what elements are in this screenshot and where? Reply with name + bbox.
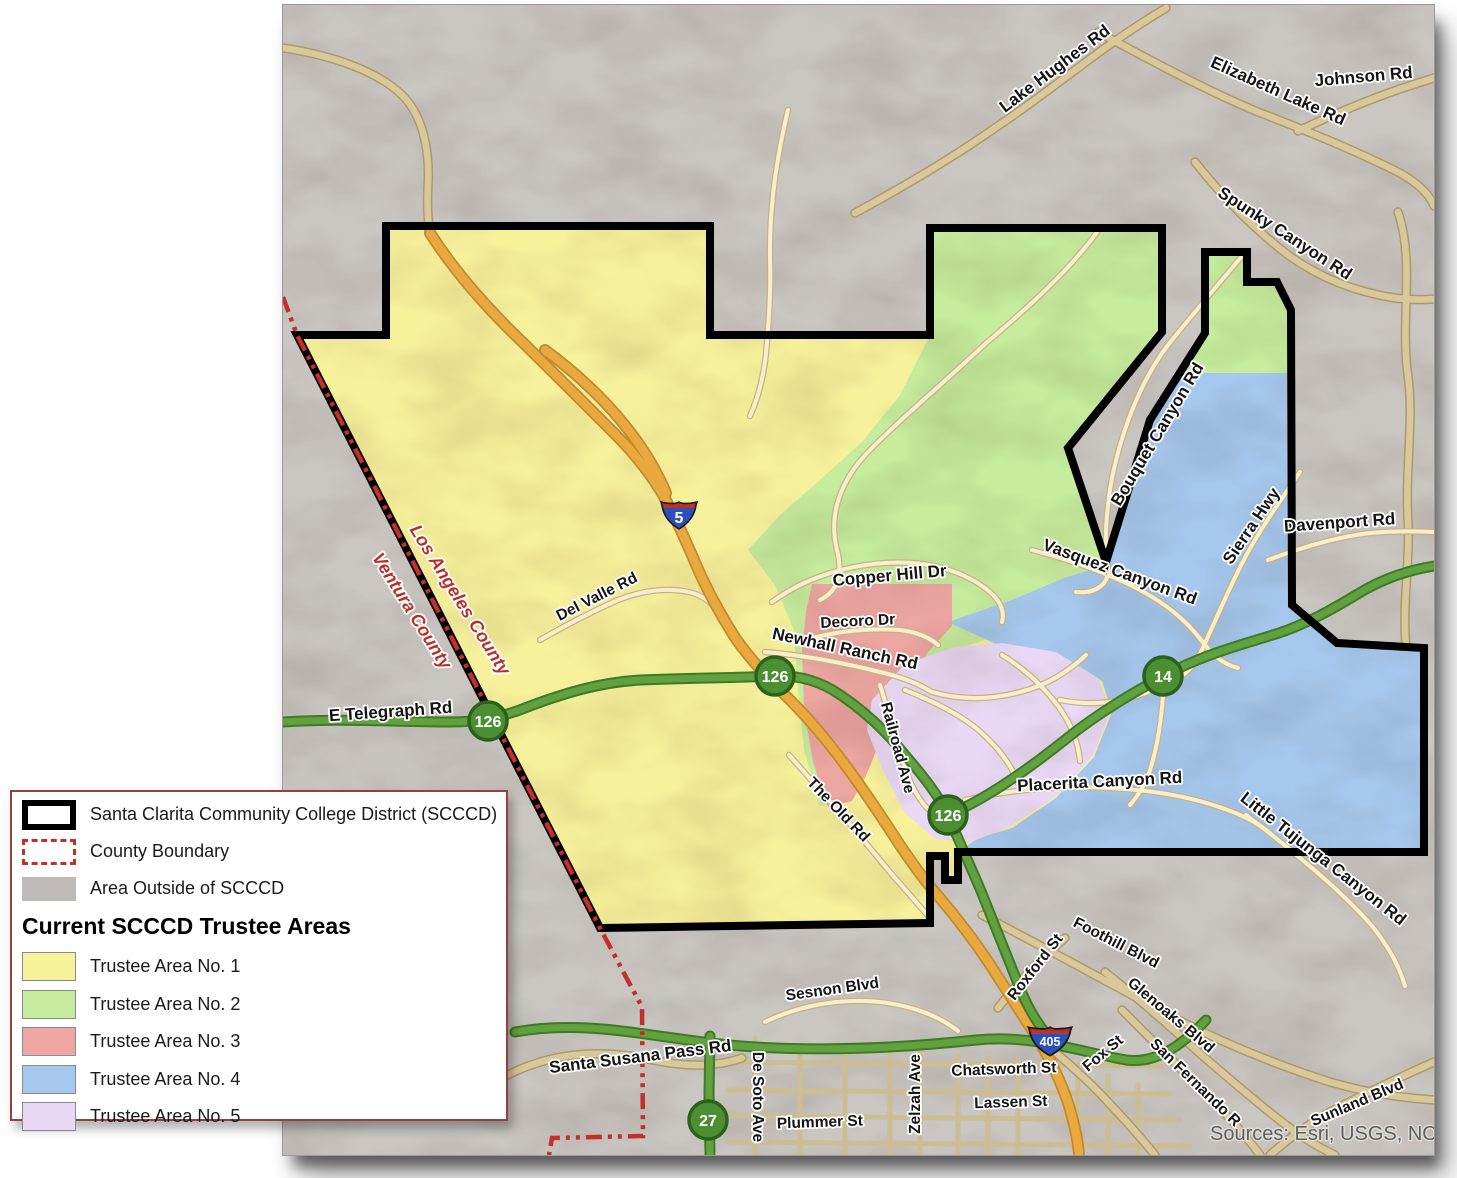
legend-item-label: Area Outside of SCCCD — [90, 878, 284, 899]
trustee-5-swatch — [22, 1102, 76, 1131]
road-label-de-soto-ave: De Soto Ave — [749, 1052, 766, 1143]
svg-text:126: 126 — [935, 808, 962, 825]
route-shield-126-south: 126 — [929, 796, 967, 834]
route-shield-14: 14 — [1144, 657, 1182, 695]
legend-heading: Current SCCCD Trustee Areas — [22, 913, 496, 940]
legend-item-label: Trustee Area No. 1 — [90, 956, 240, 977]
map-attribution: Sources: Esri, USGS, NOAA — [1210, 1123, 1434, 1145]
legend-item-trustee-5: Trustee Area No. 5 — [22, 1102, 496, 1131]
legend-item-label: Trustee Area No. 4 — [90, 1069, 240, 1090]
road-label-zelzah-ave: Zelzah Ave — [907, 1054, 924, 1134]
road-label-lassen-st: Lassen St — [974, 1093, 1048, 1113]
trustee-4-swatch — [22, 1065, 76, 1094]
legend-item-outside-area: Area Outside of SCCCD — [22, 874, 496, 903]
legend-item-label: Santa Clarita Community College District… — [90, 804, 497, 825]
svg-text:126: 126 — [762, 669, 789, 686]
road-label-plummer-st: Plummer St — [777, 1113, 864, 1133]
legend-item-label: County Boundary — [90, 841, 229, 862]
legend-item-trustee-3: Trustee Area No. 3 — [22, 1027, 496, 1056]
legend-item-trustee-1: Trustee Area No. 1 — [22, 952, 496, 981]
legend-item-trustee-2: Trustee Area No. 2 — [22, 990, 496, 1019]
legend-item-label: Trustee Area No. 3 — [90, 1031, 240, 1052]
outside-area-swatch — [22, 877, 76, 901]
page-background: 126 126 126 14 27 5 — [0, 0, 1457, 1178]
svg-text:405: 405 — [1040, 1035, 1061, 1049]
legend-item-label: Trustee Area No. 5 — [90, 1106, 240, 1127]
legend-item-trustee-4: Trustee Area No. 4 — [22, 1065, 496, 1094]
trustee-2-swatch — [22, 990, 76, 1019]
svg-text:126: 126 — [475, 714, 502, 731]
legend-item-district: Santa Clarita Community College District… — [22, 800, 496, 829]
svg-text:5: 5 — [675, 510, 684, 527]
legend-item-label: Trustee Area No. 2 — [90, 994, 240, 1015]
county-boundary-swatch — [22, 839, 76, 865]
legend-trustee-areas: Trustee Area No. 1 Trustee Area No. 2 Tr… — [22, 952, 496, 1131]
route-shield-126-mid: 126 — [756, 657, 794, 695]
route-shield-126-west: 126 — [469, 702, 507, 740]
legend-item-county-boundary: County Boundary — [22, 837, 496, 866]
trustee-3-swatch — [22, 1027, 76, 1056]
district-outline-swatch — [22, 800, 76, 830]
svg-text:27: 27 — [699, 1113, 717, 1130]
map-legend: Santa Clarita Community College District… — [10, 790, 508, 1121]
route-shield-27: 27 — [689, 1101, 727, 1139]
svg-text:14: 14 — [1154, 669, 1172, 686]
trustee-1-swatch — [22, 952, 76, 981]
